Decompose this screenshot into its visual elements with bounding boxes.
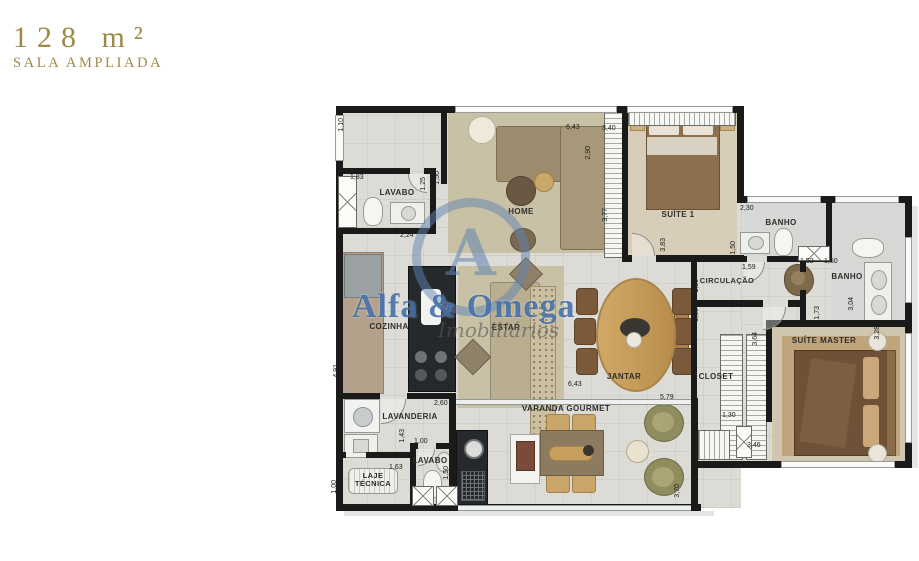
banho2-sink-counter bbox=[864, 262, 892, 322]
dim-label: 1,30 bbox=[722, 412, 736, 419]
suite1-wardrobe bbox=[604, 112, 623, 258]
window-home bbox=[456, 107, 616, 112]
suite1-headboard-panel bbox=[628, 112, 736, 126]
wall-hall bbox=[441, 106, 447, 184]
dining-chair bbox=[576, 348, 598, 375]
dim-label: 3,77 bbox=[602, 208, 609, 222]
lavabo1-sink-counter bbox=[390, 202, 425, 224]
master-headboard bbox=[886, 350, 896, 456]
wall-lavanderia-top-a bbox=[336, 393, 380, 399]
room-label-banho2: BANHO bbox=[831, 272, 862, 281]
wall-left bbox=[336, 106, 343, 511]
dim-label: 2,30 bbox=[740, 205, 754, 212]
wall-closet-divider bbox=[766, 327, 772, 422]
master-pillow bbox=[863, 405, 879, 447]
wall-varanda-right bbox=[691, 398, 698, 511]
watermark-tagline: Imobiliários bbox=[438, 318, 559, 342]
dim-label: 6,43 bbox=[566, 124, 580, 131]
master-throw bbox=[799, 358, 856, 448]
dim-label: 1,25 bbox=[420, 177, 427, 191]
wall-suite1-left bbox=[622, 106, 628, 262]
dim-label: 3,64 bbox=[752, 332, 759, 346]
room-label-suite-master: SUÍTE MASTER bbox=[792, 336, 856, 345]
shaft-left bbox=[338, 176, 357, 228]
cooktop-burner bbox=[415, 369, 427, 381]
dim-label: 2,60 bbox=[434, 400, 448, 407]
plan-subtitle: SALA AMPLIADA bbox=[13, 55, 163, 72]
room-label-varanda: VARANDA GOURMET bbox=[522, 404, 610, 413]
dim-label: 3,04 bbox=[848, 297, 855, 311]
plant bbox=[784, 264, 814, 296]
room-label-suite1: SUÍTE 1 bbox=[661, 210, 694, 219]
wall-banho2-left-b bbox=[800, 290, 806, 324]
varanda-table bbox=[540, 430, 604, 476]
floor-plan: 128 m² SALA AMPLIADA bbox=[0, 0, 919, 561]
dim-label: 3,70 bbox=[674, 484, 681, 498]
wall-laje-top-b bbox=[366, 452, 414, 458]
suite1-bed bbox=[646, 116, 720, 210]
dim-label: 2,90 bbox=[585, 146, 592, 160]
grill bbox=[461, 471, 485, 501]
dim-label: 1,00 bbox=[331, 480, 338, 494]
watermark-monogram: A bbox=[446, 222, 496, 286]
varanda-chair bbox=[572, 474, 596, 493]
plan-header: 128 m² SALA AMPLIADA bbox=[13, 22, 163, 72]
washing-machine bbox=[344, 399, 380, 433]
bowl bbox=[583, 445, 594, 456]
dim-label: 5,79 bbox=[660, 394, 674, 401]
banho2-toilet bbox=[852, 238, 884, 258]
window-right-a bbox=[906, 238, 911, 302]
varanda-cabinet bbox=[510, 434, 540, 484]
dim-label: 3,40 bbox=[602, 125, 616, 132]
window-suite1 bbox=[628, 107, 732, 112]
window-banho2 bbox=[836, 197, 898, 202]
dim-label: 3,46 bbox=[747, 442, 761, 449]
dim-label: 2,24 bbox=[400, 232, 414, 239]
dim-label: 3,28 bbox=[874, 326, 881, 340]
dim-label: 3,60 bbox=[693, 308, 700, 322]
dim-label: 1,63 bbox=[389, 464, 403, 471]
closet-wardrobe-bottom bbox=[698, 430, 730, 460]
lounge-chair-top bbox=[644, 404, 684, 442]
room-label-lavabo1: LAVABO bbox=[380, 188, 415, 197]
home-coffee-table bbox=[506, 176, 536, 206]
room-label-lavabo2: LAVABO bbox=[413, 456, 448, 465]
dim-label: 1,50 bbox=[443, 466, 450, 480]
home-round-table bbox=[468, 116, 496, 144]
cooktop-burner bbox=[435, 369, 447, 381]
room-label-closet: CLOSET bbox=[699, 372, 734, 381]
wall-suite1-bottom-a bbox=[622, 255, 632, 262]
dim-label: 1,52 bbox=[800, 258, 814, 265]
dining-plate bbox=[626, 332, 642, 348]
varanda-chair bbox=[546, 474, 570, 493]
wall-lavabo2-top-b bbox=[436, 443, 452, 449]
room-label-laje-tecnica: LAJE TÉCNICA bbox=[350, 472, 396, 489]
room-label-jantar: JANTAR bbox=[607, 372, 641, 381]
room-label-lavanderia: LAVANDERIA bbox=[382, 412, 437, 421]
wall-circ-bottom-a bbox=[691, 300, 763, 307]
dim-label: 1,50 bbox=[730, 241, 737, 255]
banho1-toilet bbox=[774, 228, 793, 256]
window-suite-master bbox=[906, 334, 911, 442]
home-side-table bbox=[534, 172, 554, 192]
area-label: 128 m² bbox=[13, 22, 163, 54]
wall-circ-bottom-b bbox=[788, 300, 802, 307]
wall-home-right bbox=[737, 106, 744, 203]
dim-label: 1,10 bbox=[338, 118, 345, 132]
window-banho1 bbox=[748, 197, 820, 202]
master-pillow bbox=[863, 357, 879, 399]
dim-label: 1,43 bbox=[399, 429, 406, 443]
wall-suite1-bottom-b bbox=[656, 255, 744, 262]
shaft-bottom-2 bbox=[436, 486, 458, 506]
dim-label: 1,00 bbox=[414, 438, 428, 445]
dim-label: 1,50 bbox=[434, 171, 441, 185]
lavabo1-toilet bbox=[363, 197, 383, 226]
plan-shadow-right bbox=[912, 206, 918, 468]
wall-master-top bbox=[766, 320, 906, 327]
window-master-bottom bbox=[782, 462, 894, 467]
room-label-circulacao: CIRCULAÇÃO bbox=[700, 276, 754, 285]
plan-shadow-bottom bbox=[344, 511, 714, 516]
room-label-banho1: BANHO bbox=[765, 218, 796, 227]
cooktop-burner bbox=[435, 351, 447, 363]
glass-varanda-rail bbox=[458, 505, 691, 511]
gourmet-counter bbox=[456, 430, 488, 508]
suite-master-bed bbox=[794, 350, 888, 456]
dim-label: 6,43 bbox=[568, 381, 582, 388]
gourmet-sink bbox=[464, 439, 484, 459]
dim-label: 1,73 bbox=[814, 306, 821, 320]
dining-chair bbox=[576, 288, 598, 315]
dim-label: 1,59 bbox=[742, 264, 756, 271]
varanda-side-table bbox=[626, 440, 649, 463]
dim-label: 3,83 bbox=[660, 238, 667, 252]
dim-label: 1,00 bbox=[693, 279, 700, 293]
wall-laje-top-a bbox=[336, 452, 346, 458]
dim-label: 1,50 bbox=[824, 258, 838, 265]
cooktop-burner bbox=[415, 351, 427, 363]
shaft-bottom-1 bbox=[412, 486, 434, 506]
banho1-sink bbox=[740, 232, 770, 254]
dim-label: 4,91 bbox=[333, 364, 340, 378]
wall-lavabo1-top-a bbox=[336, 168, 410, 174]
dining-chair bbox=[574, 318, 596, 345]
dim-label: 1,83 bbox=[350, 174, 364, 181]
